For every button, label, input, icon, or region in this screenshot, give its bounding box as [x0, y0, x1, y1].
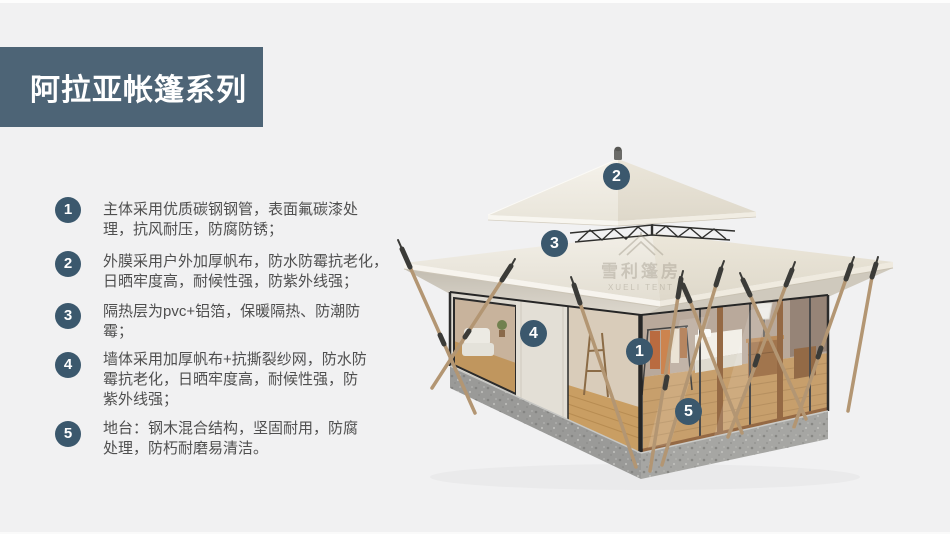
tent-illustration [390, 145, 950, 515]
feature-line: 隔热层为pvc+铝箔，保暖隔热、防潮防 [103, 302, 360, 322]
callout-badge-5: 5 [675, 398, 702, 425]
feature-badge-3: 3 [55, 303, 81, 329]
feature-badge-4: 4 [55, 352, 81, 378]
feature-line: 紫外线强； [103, 390, 367, 410]
feature-line: 地台：钢木混合结构，坚固耐用，防腐 [103, 419, 358, 439]
feature-line: 墙体采用加厚帆布+抗撕裂纱网，防水防 [103, 350, 367, 370]
top-strip [0, 0, 950, 3]
feature-text-1: 主体采用优质碳钢钢管，表面氟碳漆处 理，抗风耐压，防腐防锈； [103, 200, 358, 240]
slide: 阿拉亚帐篷系列 1 2 3 4 5 主体采用优质碳钢钢管，表面氟碳漆处 理，抗风… [0, 0, 950, 534]
feature-text-5: 地台：钢木混合结构，坚固耐用，防腐 处理，防朽耐磨易清洁。 [103, 419, 358, 459]
feature-text-4: 墙体采用加厚帆布+抗撕裂纱网，防水防 霉抗老化，日晒牢度高，耐候性强，防 紫外线… [103, 350, 367, 410]
feature-line: 霉抗老化，日晒牢度高，耐候性强，防 [103, 370, 367, 390]
feature-line: 主体采用优质碳钢钢管，表面氟碳漆处 [103, 200, 358, 220]
feature-line: 日晒牢度高，耐候性强，防紫外线强； [103, 272, 388, 292]
feature-line: 理，抗风耐压，防腐防锈； [103, 220, 358, 240]
feature-text-3: 隔热层为pvc+铝箔，保暖隔热、防潮防 霉； [103, 302, 360, 342]
feature-line: 处理，防朽耐磨易清洁。 [103, 439, 358, 459]
plant [497, 320, 507, 330]
feature-text-2: 外膜采用户外加厚帆布，防水防霉抗老化， 日晒牢度高，耐候性强，防紫外线强； [103, 252, 388, 292]
feature-badge-1: 1 [55, 197, 81, 223]
callout-badge-2: 2 [603, 163, 630, 190]
page-title: 阿拉亚帐篷系列 [30, 65, 247, 109]
callout-badge-3: 3 [541, 230, 568, 257]
feature-line: 霉； [103, 322, 360, 342]
feature-badge-2: 2 [55, 251, 81, 277]
feature-badge-5: 5 [55, 421, 81, 447]
feature-line: 外膜采用户外加厚帆布，防水防霉抗老化， [103, 252, 388, 272]
callout-badge-1: 1 [626, 338, 653, 365]
callout-badge-4: 4 [520, 320, 547, 347]
title-banner: 阿拉亚帐篷系列 [0, 47, 263, 127]
